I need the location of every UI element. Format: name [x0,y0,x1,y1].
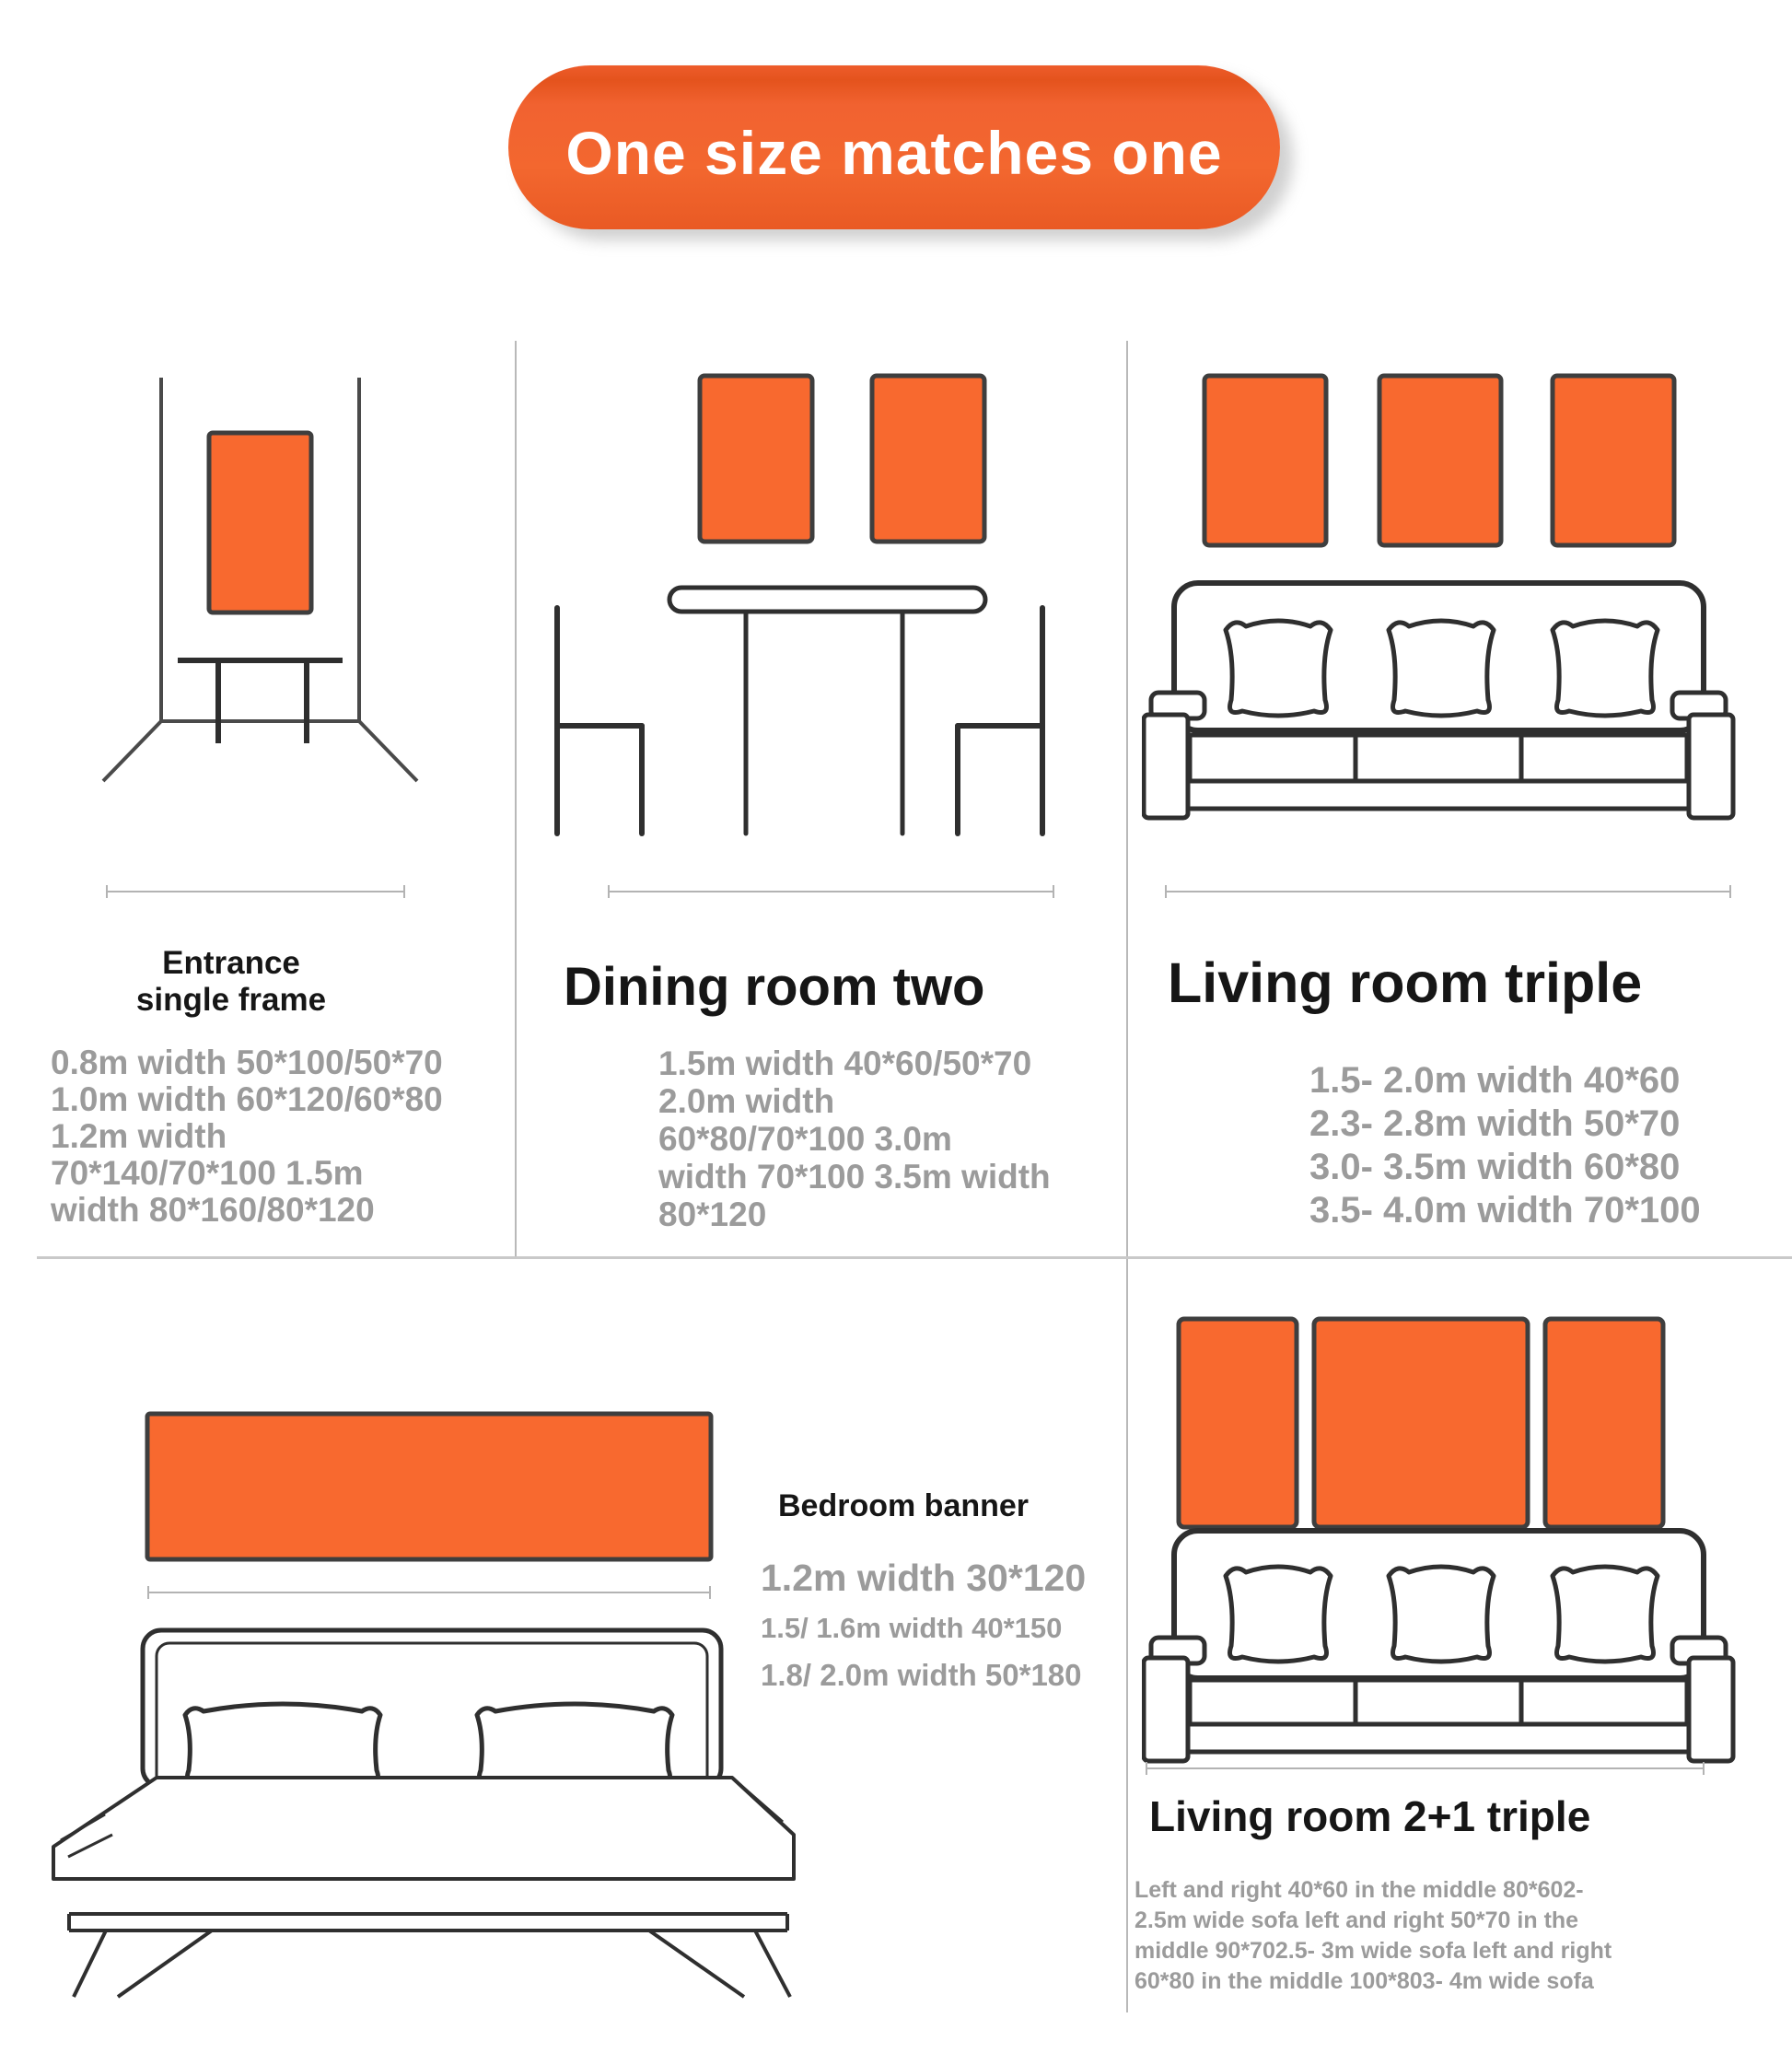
living-room-2plus1-illustration [1142,1289,1768,1778]
size-line: 70*140/70*100 1.5m [51,1155,443,1192]
size-line: width 80*160/80*120 [51,1192,443,1229]
dining-title: Dining room two [564,956,985,1018]
dining-table [669,588,985,834]
living-triple-title: Living room triple [1168,951,1642,1015]
banner-frame [147,1414,711,1559]
dining-chair-right [958,608,1042,834]
width-measure-living-2plus1 [1146,1767,1705,1769]
divider-horizontal [37,1256,1792,1259]
width-measure-bedroom [147,1592,711,1593]
entrance-title: Entrance single frame [51,945,412,1019]
size-line: Left and right 40*60 in the middle 80*60… [1135,1875,1612,1906]
size-line: 2.5m wide sofa left and right 50*70 in t… [1135,1906,1612,1936]
living-triple-size-list: 1.5- 2.0m width 40*60 2.3- 2.8m width 50… [1309,1059,1701,1232]
console-table [178,660,343,743]
bedroom-illustration [28,1382,810,2017]
bedroom-title: Bedroom banner [778,1488,1029,1524]
header-pill: One size matches one [508,65,1280,229]
artwork-frame [1553,376,1674,545]
width-measure-entrance [106,891,405,892]
entrance-title-line1: Entrance [51,945,412,982]
artwork-frame-wide [1314,1319,1528,1527]
dining-room-illustration [525,350,1123,838]
sofa [1144,1531,1733,1761]
sofa-pillows [1226,1567,1658,1662]
sofa-seat [1190,1680,1687,1752]
sofa [1144,583,1733,818]
living-room-triple-illustration [1142,350,1768,866]
size-line: 1.8/ 2.0m width 50*180 [761,1658,1086,1693]
entrance-room-illustration [37,350,460,783]
size-line: 1.5/ 1.6m width 40*150 [761,1612,1086,1645]
bed-legs [74,1931,790,1997]
size-line: width 70*100 3.5m width [658,1158,1051,1196]
artwork-frame [700,376,812,542]
width-measure-dining [608,891,1054,892]
size-line: 2.0m width [658,1082,1051,1120]
sofa-pillows [1226,621,1658,716]
living-2plus1-size-list: Left and right 40*60 in the middle 80*60… [1135,1875,1612,1997]
size-line: 60*80 in the middle 100*803- 4m wide sof… [1135,1966,1612,1997]
artwork-frame [1179,1319,1297,1527]
header-title: One size matches one [565,118,1222,188]
entrance-size-list: 0.8m width 50*100/50*70 1.0m width 60*12… [51,1044,443,1229]
artwork-frame [872,376,984,542]
size-line: middle 90*702.5- 3m wide sofa left and r… [1135,1936,1612,1966]
dining-size-list: 1.5m width 40*60/50*70 2.0m width 60*80/… [658,1044,1051,1233]
sofa-seat [1190,735,1687,809]
size-line: 1.2m width 30*120 [761,1557,1086,1599]
bedroom-size-list: 1.2m width 30*120 1.5/ 1.6m width 40*150… [761,1557,1086,1693]
dining-chair-left [557,608,642,834]
size-line: 3.5- 4.0m width 70*100 [1309,1189,1701,1232]
divider-vertical-right [1126,341,1128,2012]
bed-mattress [53,1778,794,1879]
artwork-frame [1545,1319,1663,1527]
artwork-frame [209,433,311,612]
artwork-frame [1204,376,1326,545]
width-measure-living-triple [1165,891,1731,892]
bed-pillows [185,1704,672,1785]
size-line: 1.5m width 40*60/50*70 [658,1044,1051,1082]
living-2plus1-title: Living room 2+1 triple [1149,1791,1590,1841]
size-guide-infographic: One size matches one [0,0,1792,2053]
size-line: 1.2m width [51,1118,443,1155]
bed-frame [69,1914,787,1931]
size-line: 1.0m width 60*120/60*80 [51,1081,443,1118]
size-line: 80*120 [658,1196,1051,1233]
size-line: 1.5- 2.0m width 40*60 [1309,1059,1701,1102]
divider-vertical-left [515,341,517,1257]
artwork-frame [1379,376,1501,545]
size-line: 0.8m width 50*100/50*70 [51,1044,443,1081]
size-line: 3.0- 3.5m width 60*80 [1309,1146,1701,1189]
entrance-title-line2: single frame [51,982,412,1019]
size-line: 60*80/70*100 3.0m [658,1120,1051,1158]
size-line: 2.3- 2.8m width 50*70 [1309,1102,1701,1146]
